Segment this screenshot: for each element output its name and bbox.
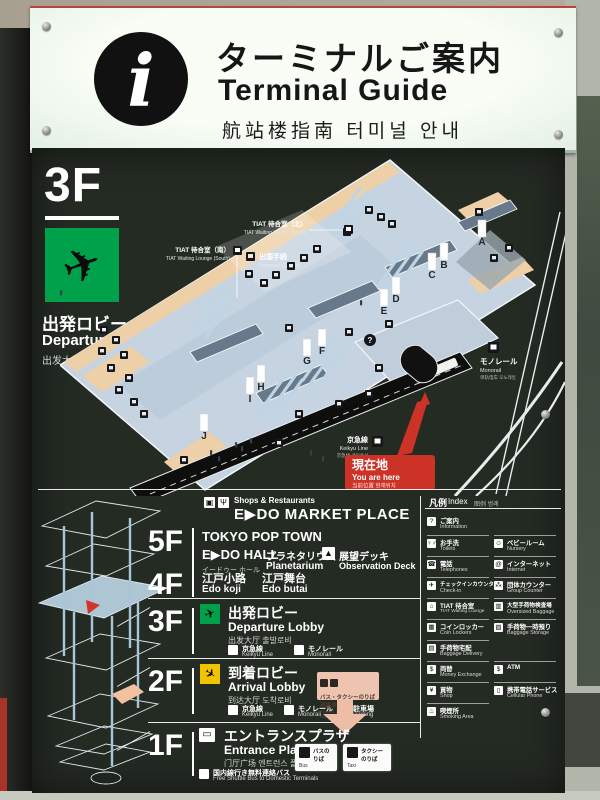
coin-locker-icon: ▦: [427, 623, 436, 632]
sign-title-japanese: ターミナルご案内: [216, 32, 504, 80]
legend-item-nursery: ☺ ベビールーム Nursery: [494, 535, 556, 557]
terminal-guide-sign-photo: i ターミナルご案内 Terminal Guide 航站楼指南 터미널 안내 3…: [0, 0, 600, 800]
svg-text:?: ?: [368, 336, 373, 345]
connector-arrow-shaft: [337, 700, 353, 714]
shop-icon: ¥: [427, 686, 436, 695]
gate-letter-d: D: [392, 294, 399, 305]
passport-label-jp: 出国手続: [259, 252, 287, 261]
telephone-icon: ☎: [427, 560, 436, 569]
shops-restaurants-label: Shops & Restaurants: [234, 496, 315, 505]
gate-letter-f: F: [319, 346, 325, 357]
red-object-edge: [0, 698, 7, 800]
legend-item-information: ? ご案内 Information: [427, 514, 489, 535]
legend-item-baggage-delivery: ▤ 手荷物宅配 Baggage Delivery: [427, 640, 489, 662]
group-counter-icon: ⁂: [494, 581, 503, 590]
monorail-icon: [284, 705, 294, 715]
svg-text:TIAT Waiting Lounge (North): TIAT Waiting Lounge (North): [244, 230, 308, 236]
sign-title-chinese-korean: 航站楼指南 터미널 안내: [222, 116, 463, 143]
floor-3f-en: Departure Lobby: [228, 620, 324, 634]
legend-item-tiat-lounge: ⌂ TIAT 待合室 TIAT Waiting Lounge: [427, 598, 489, 620]
floor-3f-bar: [192, 608, 194, 654]
legend-item-telephones: ☎ 電話 Telephones: [427, 556, 489, 578]
bus-stop-en: Bus: [299, 763, 333, 769]
edo-market-place-label: E▶DO MARKET PLACE: [234, 505, 410, 523]
screw-icon: [554, 28, 563, 37]
legend-title-en: Index: [448, 497, 468, 506]
floor-2f-number: 2F: [148, 665, 183, 699]
gate-letter-j: J: [201, 431, 207, 442]
legend-item-checkin: ✈ チェックインカウンター Check-in: [427, 577, 489, 599]
svg-text:TIAT Waiting Lounge (South): TIAT Waiting Lounge (South): [166, 256, 230, 262]
checkin-icon: ✈: [427, 581, 436, 590]
screw-icon: [541, 708, 550, 717]
observation-deck-en: Observation Deck: [339, 561, 416, 571]
monorail-label: モノレール Monorail 单轨电车 모노레일: [480, 342, 518, 381]
cellular-phone-icon: ▯: [494, 686, 503, 695]
svg-text:京急線: 京急線: [347, 435, 368, 444]
svg-text:TIAT 待合室（北）: TIAT 待合室（北）: [252, 219, 307, 228]
information-icon: i: [94, 32, 188, 126]
gate-letter-h: H: [257, 382, 264, 393]
svg-text:現在地: 現在地: [352, 457, 388, 472]
section-divider: [38, 489, 561, 490]
gate-letter-b: B: [440, 260, 447, 271]
svg-text:TIAT 待合室（南）: TIAT 待合室（南）: [175, 245, 230, 254]
gate-letter-e: E: [381, 306, 388, 317]
legend-item-coin-lockers: ▦ コインロッカー Coin Lockers: [427, 619, 489, 641]
pillar-handrail: [565, 693, 600, 767]
legend-header-line: [425, 508, 561, 509]
sign-title-english: Terminal Guide: [218, 74, 448, 108]
floor-4f-bar: [192, 571, 194, 597]
svg-text:Keikyu Line: Keikyu Line: [340, 446, 368, 452]
legend-item-internet: @ インターネット Internet: [494, 556, 556, 578]
legend-item-atm: $ ATM: [494, 661, 556, 683]
floor-2f-keikyu-en: Keikyu Line: [242, 712, 273, 718]
smoking-icon: ♨: [427, 707, 436, 716]
floor-3f-keikyu-en: Keikyu Line: [242, 652, 273, 658]
oversized-baggage-icon: ▥: [494, 602, 503, 611]
edo-koji-en: Edo koji: [202, 584, 241, 595]
info-i-glyph: i: [94, 36, 188, 130]
svg-text:モノレール: モノレール: [480, 357, 518, 366]
entrance-bus-icon: ▭: [199, 728, 215, 742]
gate-letter-a: A: [478, 237, 485, 248]
floor-2f-monorail-en: Monorail: [298, 712, 321, 718]
lounge-icon: ⌂: [427, 602, 436, 611]
legend-divider: [420, 496, 421, 738]
baggage-storage-icon: ▧: [494, 623, 503, 632]
floor-2f-en: Arrival Lobby: [228, 680, 305, 694]
legend-title-sub: 图例 범례: [474, 499, 499, 508]
gate-letter-c: C: [428, 270, 435, 281]
legend-item-cellular-phone: ▯ 携帯電話サービス Cellular Phone: [494, 682, 556, 704]
left-shadow-strip: [0, 28, 32, 800]
row-divider-2f: [148, 658, 420, 659]
header-sign: i ターミナルご案内 Terminal Guide 航站楼指南 터미널 안내: [30, 6, 576, 153]
toilets-icon: ♀♂: [427, 539, 436, 548]
taxi-icon: [330, 679, 338, 687]
money-exchange-icon: $: [427, 665, 436, 674]
bus-taxi-connector-box: バス・タクシーのりば 連絡通路 Access to bus and taxi s…: [317, 672, 379, 700]
gate-letter-g: G: [303, 356, 311, 367]
legend-item-baggage-storage: ▧ 手荷物一時預り Baggage Storage: [494, 619, 556, 641]
taxi-stand-box: タクシーのりば Taxi: [343, 744, 391, 771]
arrival-icon-small: ✈: [200, 664, 220, 684]
shuttle-bus-icon: [199, 769, 209, 779]
row-divider-3f: [148, 598, 420, 599]
shops-icon: ▣: [204, 497, 215, 508]
keikyu-train-icon: [228, 645, 238, 655]
keikyu-train-icon: [228, 705, 238, 715]
legend-item-group-counter: ⁂ 団体カウンター Group Counter: [494, 577, 556, 599]
floor-5f-number: 5F: [148, 525, 183, 559]
observation-deck-icon: ▲: [322, 547, 335, 560]
pillar-window-reflection: [577, 96, 600, 686]
tokyo-pop-town-label: TOKYO POP TOWN: [202, 529, 322, 544]
departure-icon-small: ✈: [200, 604, 220, 624]
screw-icon: [42, 22, 51, 31]
information-icon: ?: [427, 517, 436, 526]
svg-text:单轨电车 모노레일: 单轨电车 모노레일: [480, 374, 516, 381]
legend-item-smoking-area: ♨ 喫煙所 Smoking Area: [427, 703, 489, 725]
atm-icon: $: [494, 665, 503, 674]
restaurants-icon: Ψ: [218, 497, 229, 508]
floor-3f-number: 3F: [148, 605, 183, 639]
gate-letter-i: I: [249, 394, 252, 405]
shuttle-en: Free Shuttle Bus to Domestic Terminals: [213, 776, 318, 782]
floor-2f-bar: [192, 668, 194, 714]
legend-item-money-exchange: $ 両替 Money Exchange: [427, 661, 489, 683]
internet-icon: @: [494, 560, 503, 569]
edo-butai-en: Edo butai: [262, 584, 308, 595]
floor-slab: [60, 160, 535, 490]
row-divider-1f: [148, 722, 420, 723]
legend-item-shop: ¥ 買物 Shop: [427, 682, 489, 704]
legend-item-oversized-baggage: ▥ 大型手荷物検査場 Oversized Baggage: [494, 598, 556, 620]
bus-icon: [320, 679, 328, 687]
bus-stop-box: バスのりば Bus: [295, 744, 337, 771]
screw-icon: [554, 130, 563, 139]
floor-1f-number: 1F: [148, 729, 183, 763]
screw-icon: [42, 126, 51, 135]
legend-item-toilets: ♀♂ お手洗 Toilets: [427, 535, 489, 557]
bus-icon: [299, 747, 310, 758]
question-info-icon: ?: [364, 334, 376, 346]
map-panel: 3F ✈ 出発ロビー Departure Lobby 出发大厅 출발로비: [32, 148, 565, 793]
monorail-icon: [294, 645, 304, 655]
svg-text:You are here: You are here: [352, 473, 400, 482]
terminal-floor-map: 出国手続 Passport Control: [60, 150, 565, 496]
floor-4f-number: 4F: [148, 568, 183, 602]
floor-1f-bar: [192, 732, 194, 776]
taxi-stand-en: Taxi: [347, 763, 387, 769]
screw-icon: [541, 410, 550, 419]
taxi-icon: [347, 747, 358, 758]
floor-3f-monorail-en: Monorail: [308, 652, 331, 658]
baggage-delivery-icon: ▤: [427, 644, 436, 653]
nursery-icon: ☺: [494, 539, 503, 548]
svg-text:Monorail: Monorail: [480, 368, 501, 374]
stack-pillars: [64, 512, 138, 766]
